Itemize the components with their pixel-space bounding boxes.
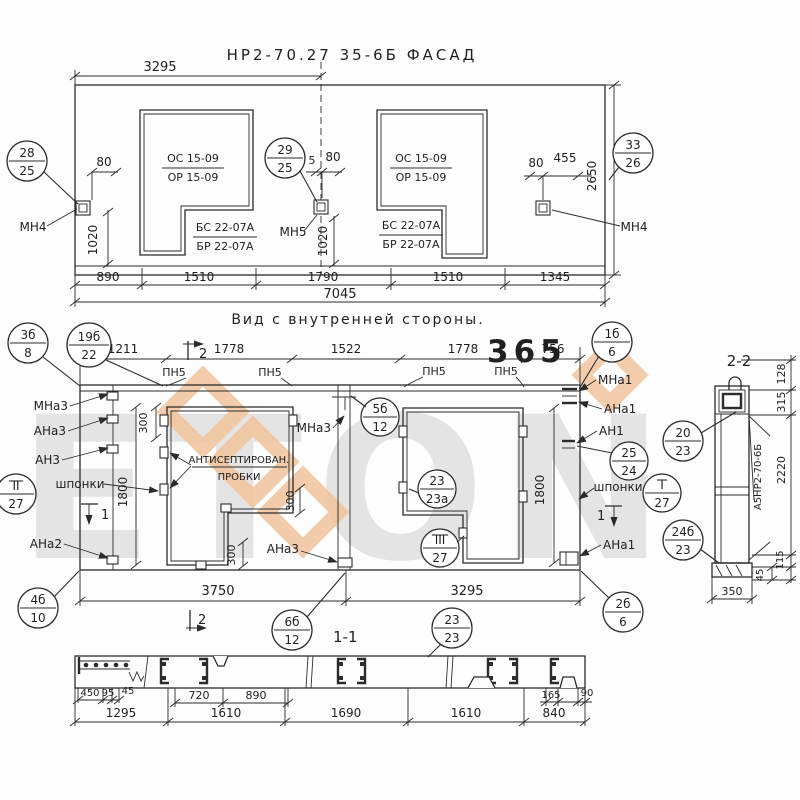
dim-720: 720 — [189, 689, 210, 702]
balloon-num: 5б — [372, 402, 387, 416]
label-ana2: АНа2 — [30, 537, 62, 551]
balloon-den: 24 — [621, 464, 636, 478]
dim-1610: 1610 — [211, 706, 242, 720]
label-mn5: МН5 — [279, 225, 306, 239]
dim-1778b: 1778 — [448, 342, 479, 356]
label-shponki-left: шпонки — [55, 477, 104, 491]
balloon-33-26: 33 26 — [609, 133, 653, 180]
dim-1510b: 1510 — [433, 270, 464, 284]
dim-1610b: 1610 — [451, 706, 482, 720]
dim-890: 890 — [97, 270, 120, 284]
section-2-2: 2-2 А5НР2-70-6Б 128 315 — [663, 352, 796, 604]
balloon-II-27: II 27 — [0, 474, 36, 514]
balloon-den: 27 — [432, 551, 447, 565]
lifting-loop — [729, 377, 741, 390]
dim-1690: 1690 — [331, 706, 362, 720]
inner-title: Вид с внутренней стороны. — [231, 312, 484, 328]
balloon-den: 10 — [30, 611, 45, 625]
balloon-den: 27 — [8, 497, 23, 511]
dim-756: 756 — [542, 342, 565, 356]
balloon-num: 25 — [621, 446, 636, 460]
window-type-label: ОС 15-09 — [395, 152, 447, 165]
balloon-den: 25 — [277, 161, 292, 175]
label-an1: АН1 — [599, 424, 624, 438]
dim-300-1: 300 — [137, 413, 150, 434]
dim-165: 165 — [541, 690, 560, 701]
label-mn4-left: МН4 — [19, 220, 46, 234]
dim-5: 5 — [309, 154, 316, 167]
balloon-num: 24б — [672, 525, 695, 539]
balloon-num: I — [660, 478, 664, 492]
dim-1790: 1790 — [308, 270, 339, 284]
dim-3750: 3750 — [201, 584, 234, 599]
dim-1345: 1345 — [540, 270, 571, 284]
balloon-den: 23 — [675, 444, 690, 458]
antiseptic-line2: ПРОБКИ — [218, 472, 261, 483]
balloon-num: 20 — [675, 426, 690, 440]
balloon-den: 23 — [444, 631, 459, 645]
balloon-den: 23 — [675, 543, 690, 557]
balloon-num: 23 — [444, 613, 459, 627]
blueprint-page: ETON 365 НР2-70.27 35-6Б ФАСАД ОС 15-09 … — [0, 0, 800, 800]
balloon-num: 28 — [19, 146, 34, 160]
balloon-29-25: 29 25 — [265, 138, 317, 202]
dim-300-2: 300 — [284, 491, 297, 512]
label-pn5-4: ПН5 — [494, 365, 518, 378]
antiseptic-line1: АНТИСЕПТИРОВАН. — [189, 455, 290, 466]
label-an3: АН3 — [35, 453, 60, 467]
balloon-num: 23 — [429, 474, 444, 488]
balloon-den: 27 — [654, 496, 669, 510]
dim-1522: 1522 — [331, 342, 362, 356]
facade-window-1: ОС 15-09 ОР 15-09 БС 22-07А БР 22-07А — [140, 110, 257, 255]
label-mn4-right: МН4 — [620, 220, 647, 234]
section-2-2-title: 2-2 — [727, 352, 752, 370]
marker-1-label: 1 — [597, 509, 605, 524]
balloon-num: 1б — [604, 327, 619, 341]
dim-300-3: 300 — [225, 545, 238, 566]
section-1-1-title: 1-1 — [333, 628, 358, 646]
balloon-num: 19б — [78, 330, 101, 344]
dim-350: 350 — [722, 585, 743, 598]
dim-80-right: 80 — [528, 156, 543, 170]
dim-95: 95 — [102, 688, 115, 699]
facade-anchor-left — [76, 201, 90, 215]
window-type-label: ОС 15-09 — [167, 152, 219, 165]
dim-840: 840 — [543, 706, 566, 720]
dim-1295: 1295 — [106, 706, 137, 720]
label-mna1: МНа1 — [598, 373, 632, 387]
balloon-num: 6б — [284, 615, 299, 629]
label-ana3-bottom: АНа3 — [267, 542, 299, 556]
balloon-den: 25 — [19, 164, 34, 178]
facade-dim-row: 890 1510 1790 1510 1345 7045 — [70, 268, 610, 307]
marker-1-label: 1 — [101, 508, 109, 523]
balloon-num: 3б — [20, 328, 35, 342]
drawing-canvas: ETON 365 НР2-70.27 35-6Б ФАСАД ОС 15-09 … — [0, 0, 800, 800]
block-type-label: БС 22-07А — [382, 219, 441, 232]
dim-315: 315 — [775, 392, 788, 413]
section-marker-2-bottom: 2 — [186, 610, 206, 631]
facade-title: НР2-70.27 35-6Б ФАСАД — [227, 46, 478, 64]
dim-45: 45 — [755, 569, 766, 582]
dim-128: 128 — [775, 364, 788, 385]
dim-450: 450 — [80, 688, 99, 699]
dim-80-left: 80 — [96, 155, 111, 169]
balloon-num: III — [435, 533, 446, 547]
balloon-den: 26 — [625, 156, 640, 170]
block-type-label: БС 22-07А — [196, 221, 255, 234]
dim-2650: 2650 — [585, 161, 599, 192]
label-ana1-bottom: АНа1 — [603, 538, 635, 552]
marker-2-label: 2 — [199, 347, 207, 362]
dim-1020-mid: 1020 — [316, 226, 330, 257]
section-1-1-dims-row2: 1295 1610 1690 1610 840 — [70, 688, 590, 726]
window-type-label: ОР 15-09 — [168, 171, 219, 184]
dim-1778: 1778 — [214, 342, 245, 356]
balloon-num: 2б — [615, 597, 630, 611]
label-ana3-left: АНа3 — [34, 424, 66, 438]
balloon-num: II — [12, 479, 19, 493]
label-mna3-left: МНа3 — [34, 399, 68, 413]
label-ana1: АНа1 — [604, 402, 636, 416]
balloon-den: 23а — [426, 492, 449, 506]
facade-anchor-center — [314, 200, 328, 214]
balloon-num: 4б — [30, 593, 45, 607]
dim-890b: 890 — [246, 689, 267, 702]
facade-window-2: ОС 15-09 ОР 15-09 БС 22-07А БР 22-07А — [377, 110, 487, 258]
panel-mark: А5НР2-70-6Б — [753, 444, 764, 510]
dim-1510: 1510 — [184, 270, 215, 284]
balloon-num: 33 — [625, 138, 640, 152]
balloon-den: 22 — [81, 348, 96, 362]
dim-80-mid: 80 — [325, 150, 340, 164]
label-pn5-1: ПН5 — [162, 366, 186, 379]
dim-3295-inner: 3295 — [450, 584, 483, 599]
label-pn5-3: ПН5 — [422, 365, 446, 378]
balloon-23-23: 23 23 — [428, 608, 472, 657]
dim-1800-left: 1800 — [116, 477, 130, 508]
dim-2220: 2220 — [775, 456, 788, 484]
balloon-num: 29 — [277, 143, 292, 157]
balloon-den: 12 — [284, 633, 299, 647]
section-foot — [712, 563, 752, 577]
balloon-den: 6 — [619, 615, 627, 629]
facade-dim-2650: 2650 — [585, 81, 621, 279]
facade-anchor-right — [536, 201, 550, 215]
balloon-28-25: 28 25 — [7, 141, 78, 204]
dim-1020-left: 1020 — [86, 225, 100, 256]
dim-7045: 7045 — [323, 287, 356, 302]
dim-90: 90 — [581, 688, 594, 699]
rebar-detail — [78, 657, 144, 681]
label-shponki-right: шпонки — [593, 480, 642, 494]
marker-2-label: 2 — [198, 613, 206, 628]
label-mna3-mid: МНа3 — [297, 421, 331, 435]
dim-1211: 1211 — [108, 342, 139, 356]
section-1-1: 450 95 45 720 890 165 90 — [70, 656, 593, 726]
window-type-label: ОР 15-09 — [396, 171, 447, 184]
dim-45b: 45 — [122, 686, 135, 697]
balloon-den: 8 — [24, 346, 32, 360]
dim-455: 455 — [554, 151, 577, 165]
dim-1800-right: 1800 — [533, 475, 547, 506]
dim-3295: 3295 — [143, 60, 176, 75]
facade-view: НР2-70.27 35-6Б ФАСАД ОС 15-09 ОР 15-09 … — [7, 46, 653, 307]
dim-115: 115 — [775, 550, 786, 569]
balloon-den: 6 — [608, 345, 616, 359]
balloon-I-27: I 27 — [643, 474, 681, 512]
block-type-label: БР 22-07А — [196, 240, 254, 253]
section-1-1-dims-row1: 450 95 45 720 890 165 90 — [73, 686, 593, 707]
balloon-24b-23: 24б 23 — [663, 520, 719, 563]
label-pn5-2: ПН5 — [258, 366, 282, 379]
block-type-label: БР 22-07А — [382, 238, 440, 251]
balloon-den: 12 — [372, 420, 387, 434]
